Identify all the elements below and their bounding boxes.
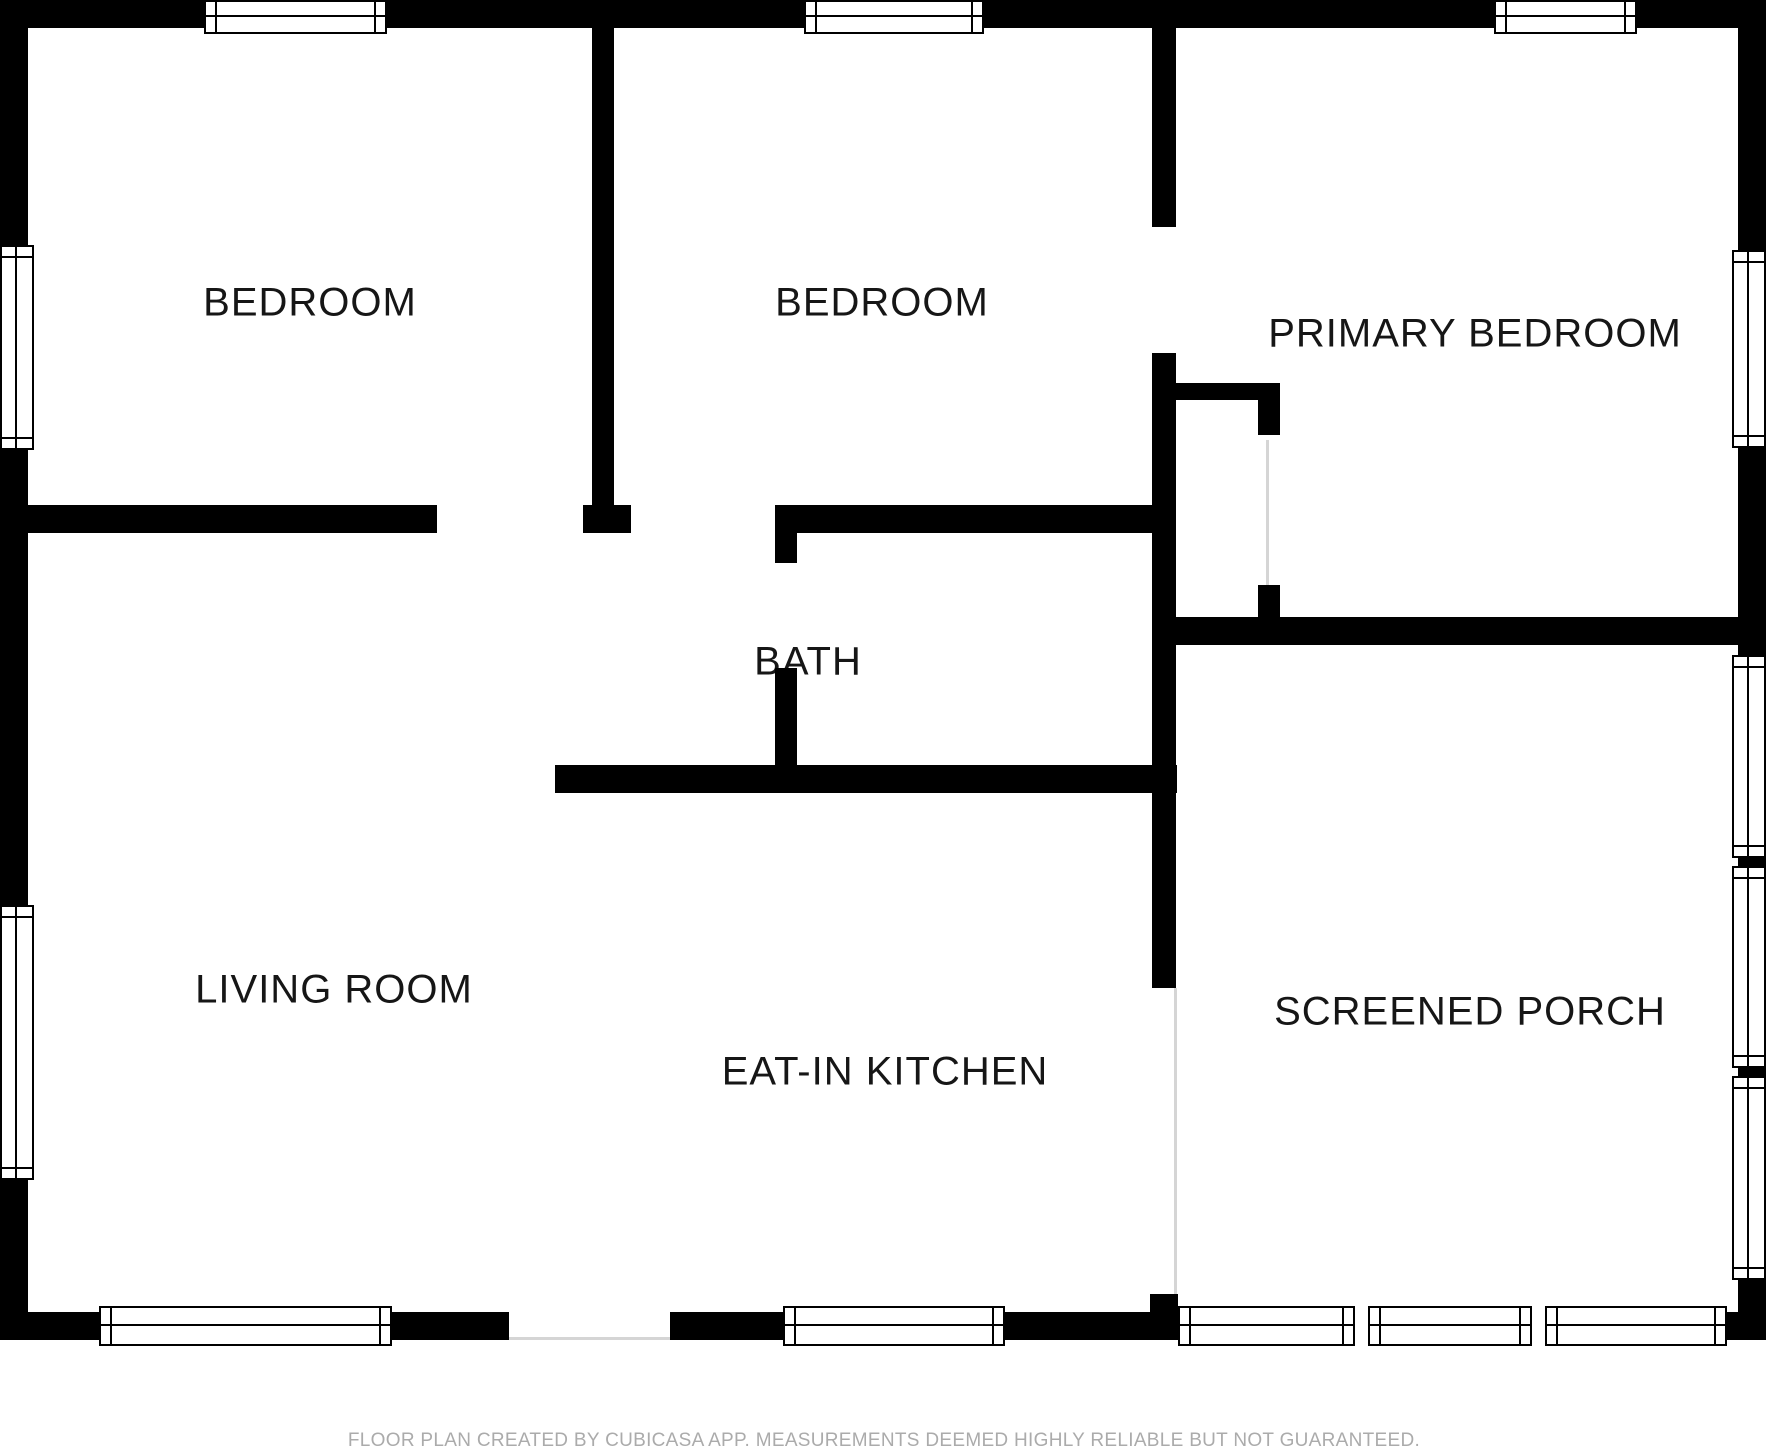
room-label-bedroom-1: BEDROOM xyxy=(203,281,417,326)
bottom-window-porch-3-window-icon xyxy=(1545,1306,1727,1346)
right-window-porch-1-window-icon xyxy=(1732,655,1766,858)
bedroom2-primary-wall-upper xyxy=(1152,28,1176,227)
room-label-eat-in-kitchen: EAT-IN KITCHEN xyxy=(722,1050,1049,1095)
footer-attribution-text: FLOOR PLAN CREATED BY CUBICASA APP. MEAS… xyxy=(348,1430,1420,1452)
closet-top-wall xyxy=(1152,383,1280,400)
room-label-bedroom-2: BEDROOM xyxy=(775,281,989,326)
bath-left-wall-upper xyxy=(775,533,797,563)
room-label-primary-bedroom: PRIMARY BEDROOM xyxy=(1268,312,1682,357)
bottom-wall-segment-e xyxy=(1727,1312,1766,1340)
bedroom1-bottom-wall xyxy=(28,505,437,533)
left-window-living-window-icon xyxy=(0,905,34,1180)
bottom-window-porch-2-window-icon xyxy=(1368,1306,1532,1346)
room-label-bath: BATH xyxy=(754,640,862,685)
right-window-porch-2-window-icon xyxy=(1732,866,1766,1068)
bath-top-wall xyxy=(775,505,1152,533)
left-window-bedroom1-window-icon xyxy=(0,245,34,450)
top-window-bedroom1-window-icon xyxy=(204,0,387,34)
porch-kitchen-wall-stub xyxy=(1150,1294,1178,1340)
hall-wall-main xyxy=(1152,353,1176,988)
right-window-porch-3-window-icon xyxy=(1732,1076,1766,1280)
room-label-living-room: LIVING ROOM xyxy=(195,968,473,1013)
bedroom1-bedroom2-divider xyxy=(592,28,614,505)
bottom-wall-segment-b xyxy=(392,1312,509,1340)
closet-door-seam xyxy=(1266,440,1269,585)
top-window-bedroom2-window-icon xyxy=(804,0,984,34)
bottom-window-porch-1-window-icon xyxy=(1178,1306,1355,1346)
porch-kitchen-opening-seam xyxy=(1174,988,1177,1294)
right-window-primary-window-icon xyxy=(1732,250,1766,448)
front-door-threshold xyxy=(509,1337,670,1340)
bottom-window-kitchen-window-icon xyxy=(783,1306,1005,1346)
bedroom-divider-cap xyxy=(583,505,631,533)
bottom-wall-segment-a xyxy=(0,1312,99,1340)
room-label-screened-porch: SCREENED PORCH xyxy=(1274,990,1666,1035)
bottom-window-living-window-icon xyxy=(99,1306,392,1346)
top-window-primary-window-icon xyxy=(1494,0,1637,34)
floor-plan-canvas: BEDROOM BEDROOM PRIMARY BEDROOM BATH LIV… xyxy=(0,0,1768,1453)
bottom-wall-segment-c xyxy=(670,1312,783,1340)
closet-right-wall-upper xyxy=(1258,400,1280,435)
primary-porch-divider-wall xyxy=(1152,617,1766,645)
kitchen-top-wall xyxy=(555,765,1177,793)
